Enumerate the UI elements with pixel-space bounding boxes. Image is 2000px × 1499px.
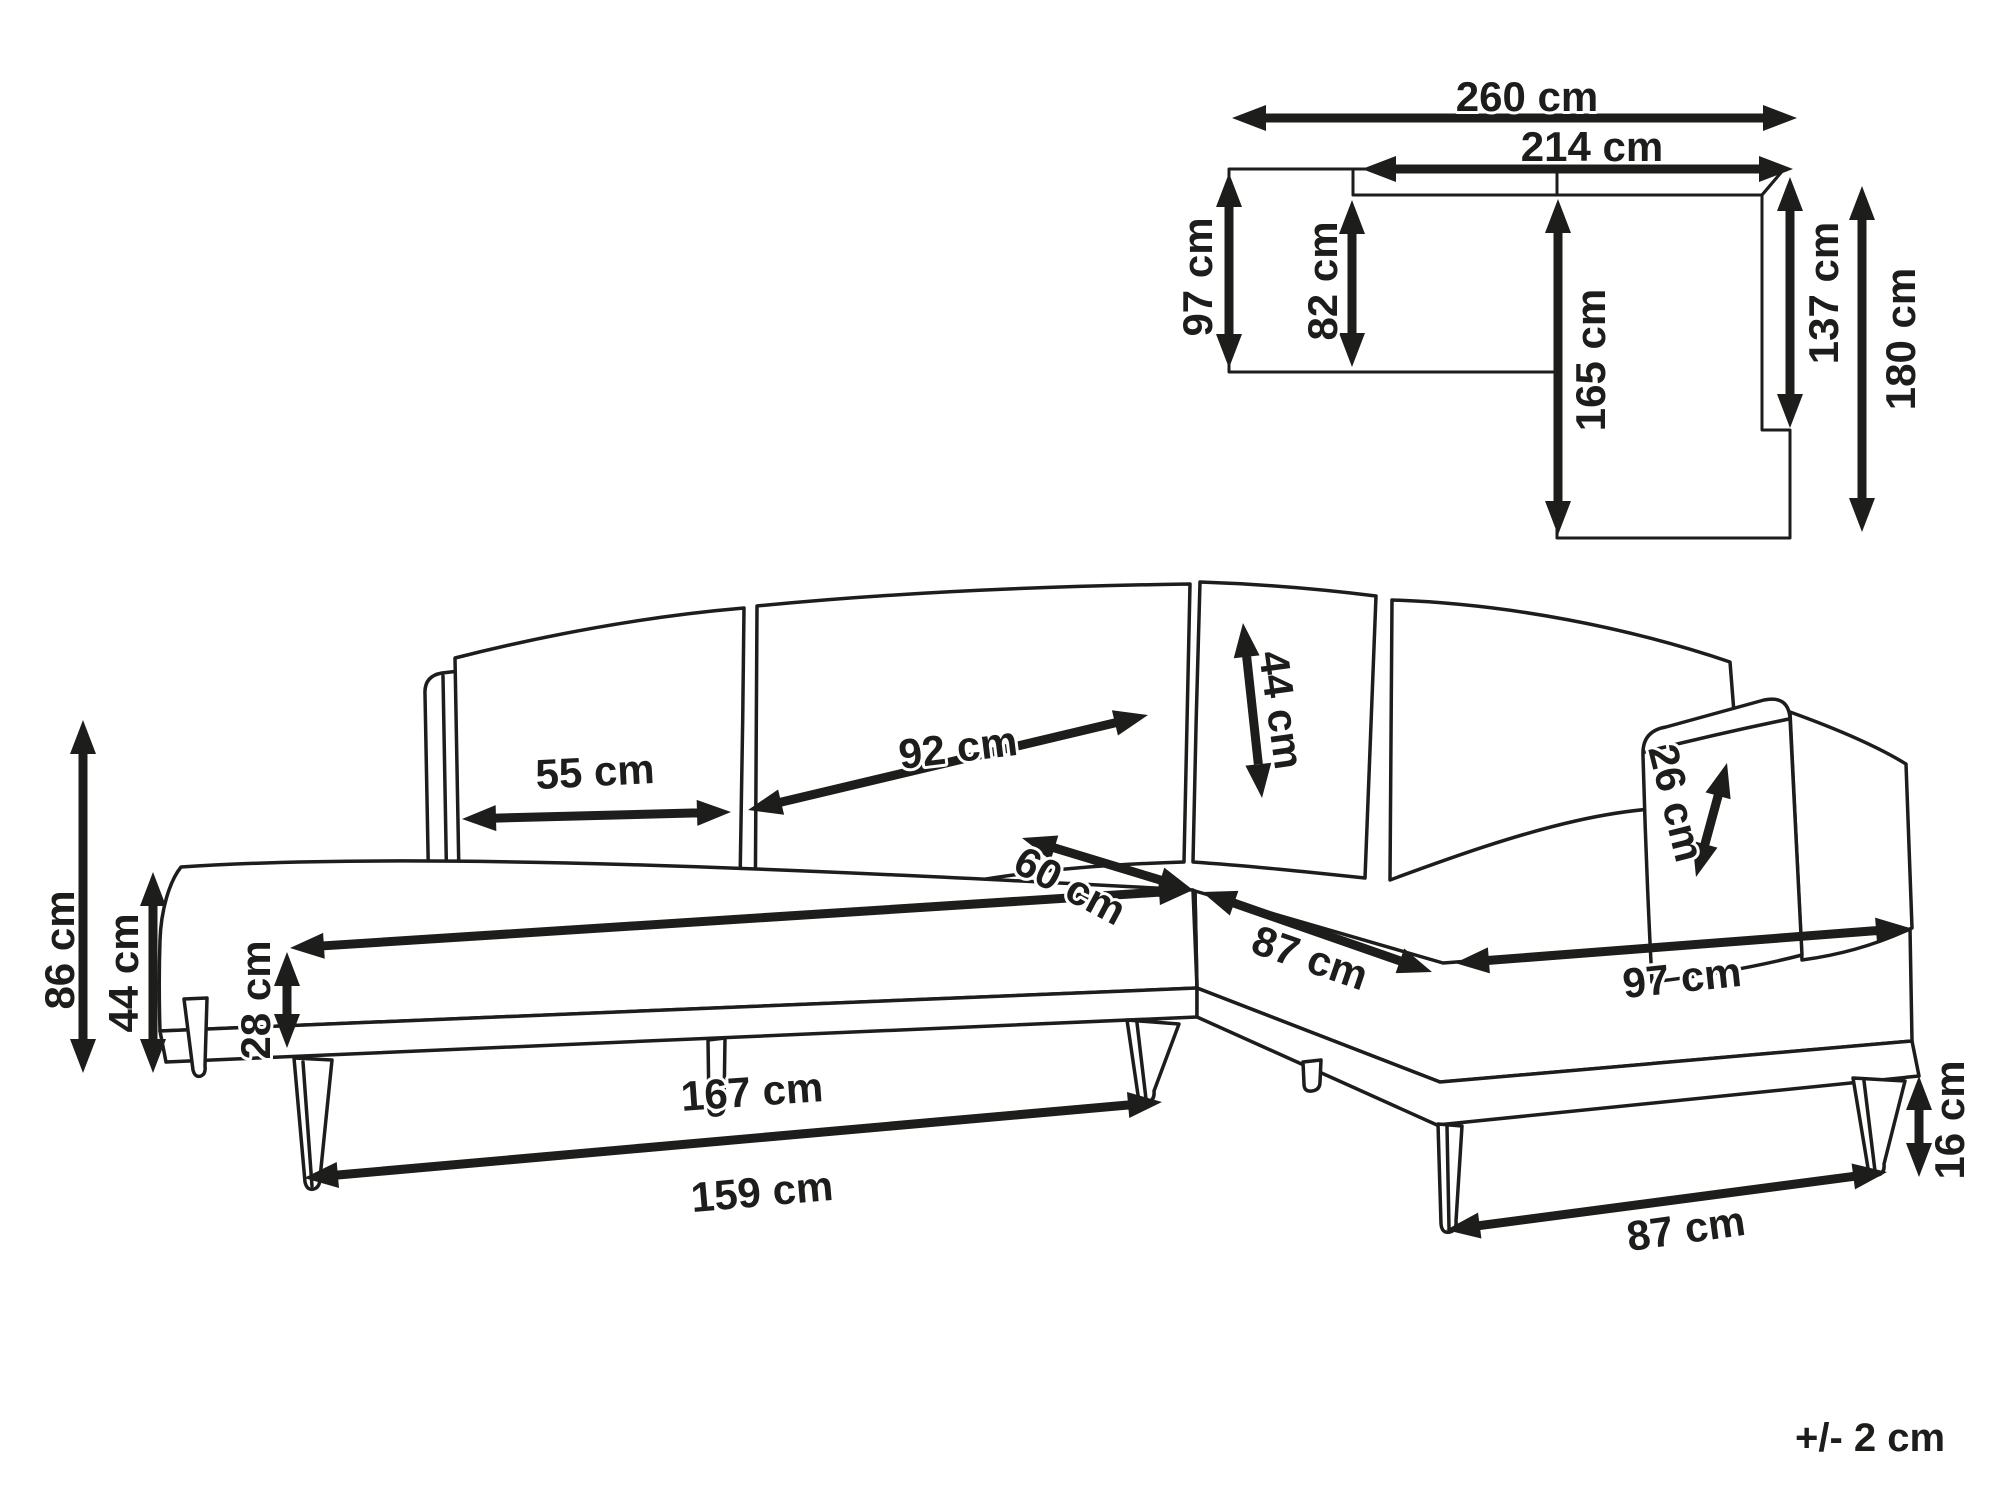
tolerance-note: +/- 2 cm <box>1795 1416 1945 1460</box>
leg-height-label: 16 cm <box>1926 1060 1973 1179</box>
armrest-side-panel <box>1790 712 1912 960</box>
base-front-length-label: 159 cm <box>689 1162 835 1221</box>
seat-height-label: 44 cm <box>100 913 147 1032</box>
plan-chaise-length-label: 165 cm <box>1567 289 1614 431</box>
sofa-dimension-diagram: 260 cm 214 cm 97 cm 82 cm 165 cm 137 cm … <box>0 0 2000 1499</box>
arrow-plan-overall-depth <box>1849 186 1875 532</box>
plan-overall-depth-label: 180 cm <box>1877 268 1924 410</box>
plan-left-depth-label: 97 cm <box>1174 217 1221 336</box>
corner-seam <box>1195 891 1197 988</box>
base-height-label: 28 cm <box>232 940 279 1059</box>
overall-height-label: 86 cm <box>36 890 83 1009</box>
leg-back-left <box>184 998 207 1076</box>
plan-inner-width-label: 214 cm <box>1521 123 1663 170</box>
leg-chaise-small <box>1303 1060 1321 1091</box>
seat-front-length-label: 167 cm <box>679 1063 824 1120</box>
leg-corner <box>1127 1020 1179 1102</box>
diagram-canvas: 260 cm 214 cm 97 cm 82 cm 165 cm 137 cm … <box>0 0 2000 1499</box>
plan-left-inner-depth-label: 82 cm <box>1299 221 1346 340</box>
plan-chaise-inner-length-label: 137 cm <box>1800 222 1847 364</box>
front-view <box>159 582 1919 1232</box>
leg-back-right <box>1853 1078 1905 1175</box>
back-cushion-small-label: 55 cm <box>534 745 655 798</box>
leg-front-right-crease <box>1447 1126 1449 1228</box>
plan-overall-width-label: 260 cm <box>1456 73 1598 120</box>
